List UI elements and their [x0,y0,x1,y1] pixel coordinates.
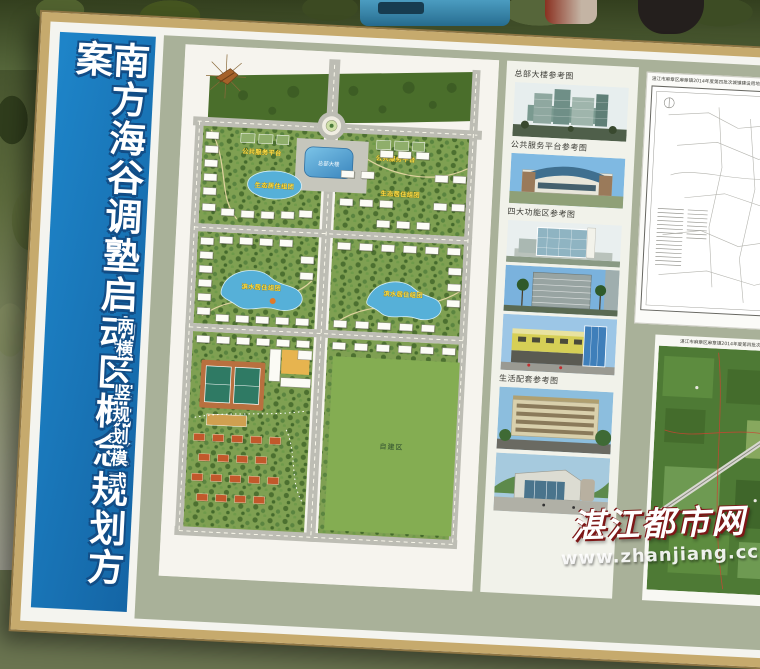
aerial-photo-panel: 湛江市麻章区麻章镇2014年度第四批次城镇建设用地 [642,334,760,608]
survey-map-panel: 湛江市麻章区麻章镇2014年度第四批次城镇建设用地(占补平衡)勘测定界图 [634,72,760,332]
headquarters-plaza: 总部大楼 [294,138,369,194]
function-zone-reference-image-3 [500,314,617,376]
living-support-reference-image-1 [496,387,613,455]
survey-map-drawing [639,84,760,319]
school-building [206,414,247,427]
background-bystander [545,0,597,24]
title-banner: 南方海谷调塾启动区概念规划方案 两横一竖规划模式 [31,32,156,612]
master-plan-map: 总部大楼 公共服务平台 公共服务平台 [159,44,500,591]
headquarters-reference-image [512,82,629,142]
site-watermark: 湛江都市网 www.zhanjiang.cc [559,494,759,570]
planning-signboard: 南方海谷调塾启动区概念规划方案 两横一竖规划模式 [11,12,760,669]
watermark-site-name: 湛江都市网 [559,494,759,549]
public-platform-reference-image [509,153,625,209]
master-plan-panel: 总部大楼 公共服务平台 公共服务平台 [159,44,500,591]
truck-window [378,2,424,14]
self-build-label: 自建区 [379,442,403,452]
background-truck [360,0,510,26]
function-zone-reference-image-2 [503,265,619,317]
function-zone-reference-image-1 [506,220,622,268]
self-build-zone: 自建区 [323,342,460,536]
